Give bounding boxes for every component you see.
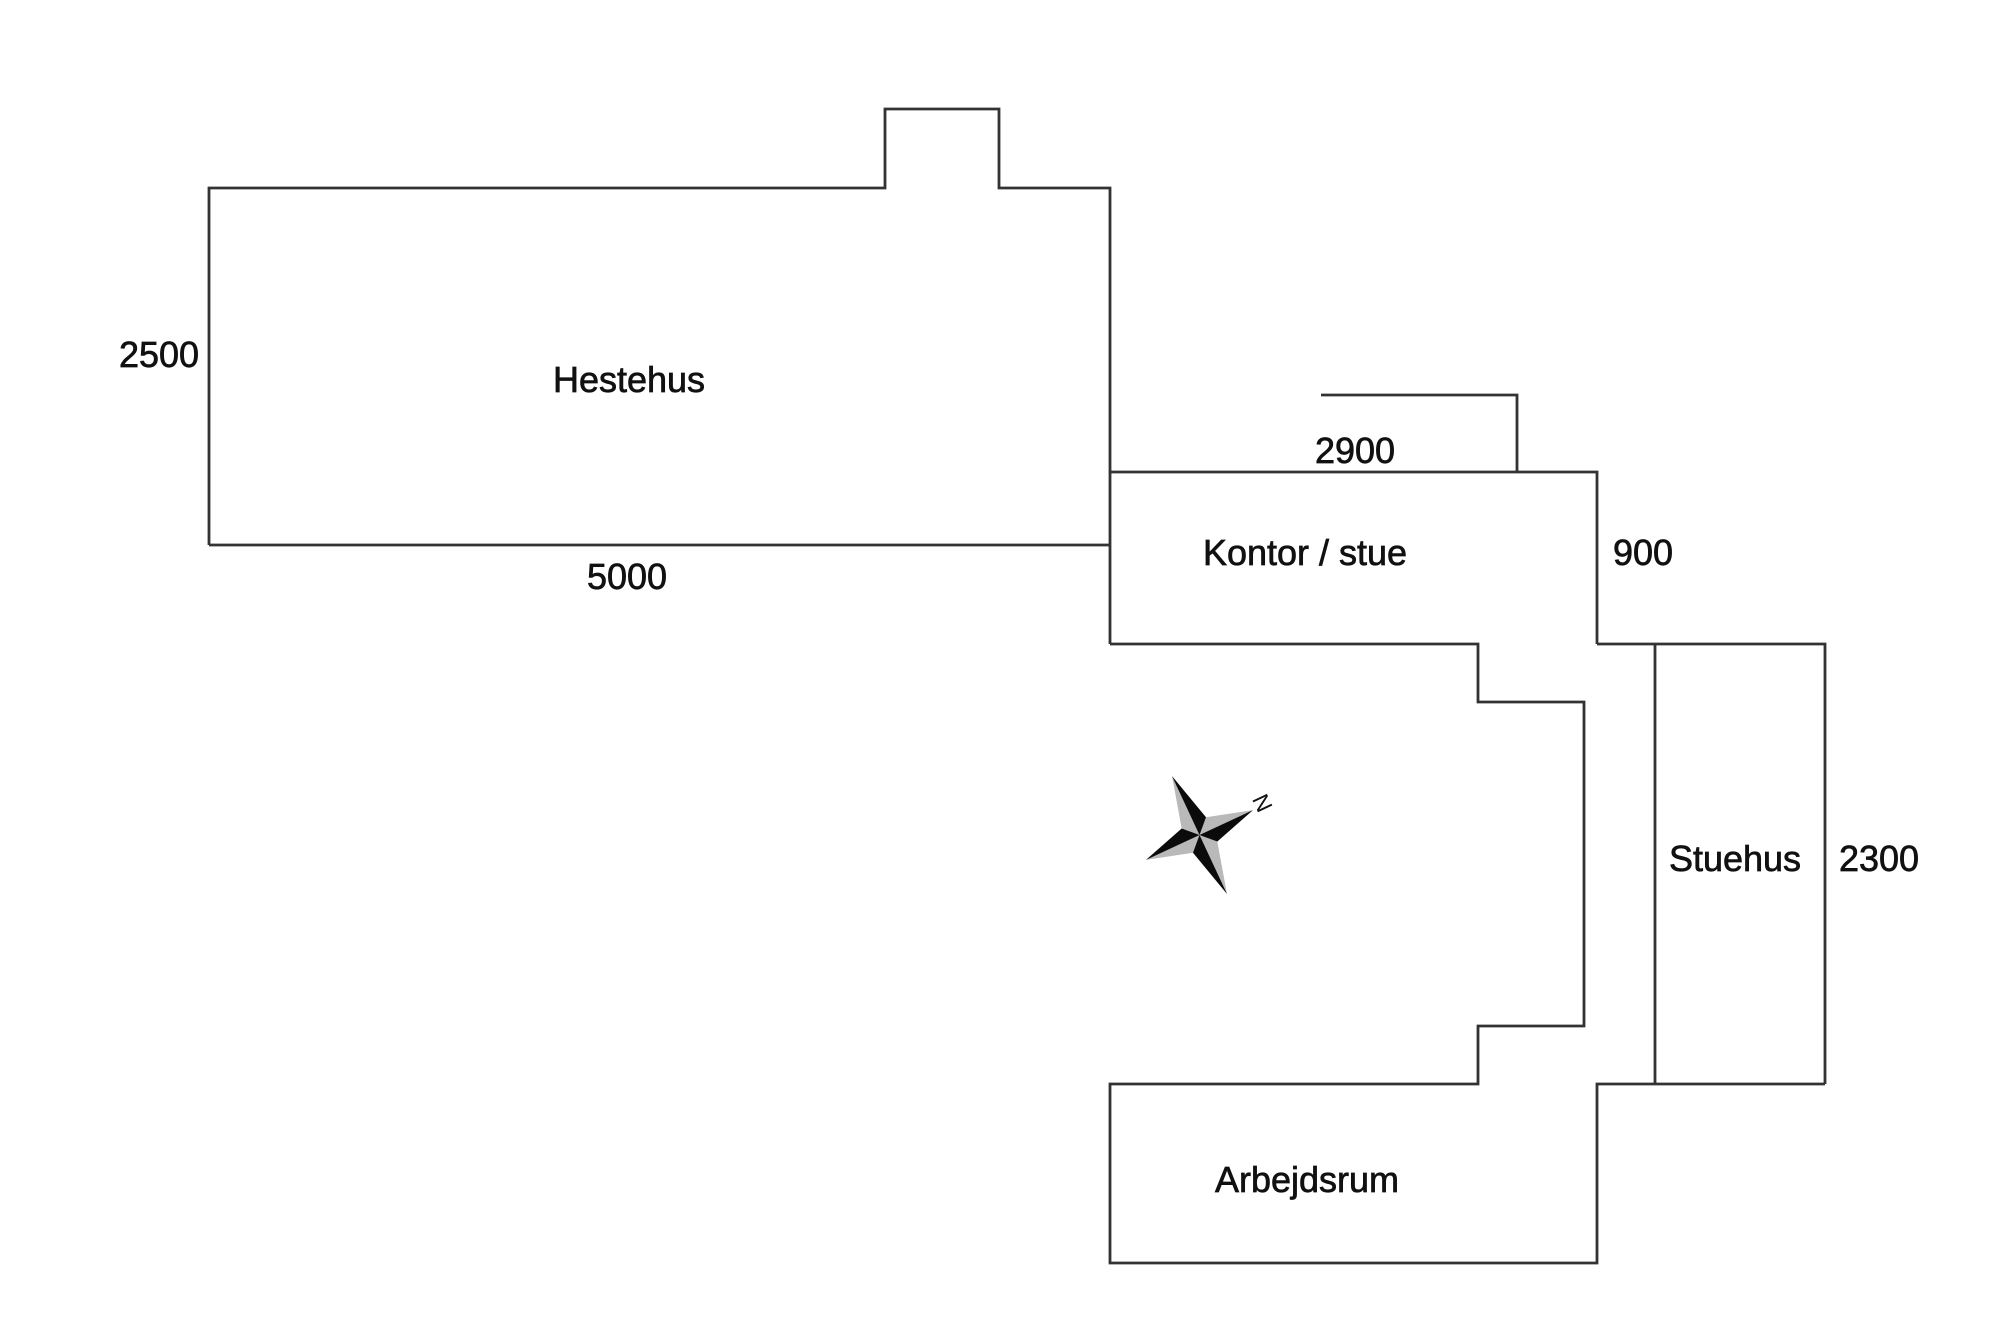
svg-text:Arbejdsrum: Arbejdsrum <box>1215 1159 1399 1200</box>
svg-text:2300: 2300 <box>1839 838 1919 879</box>
svg-text:5000: 5000 <box>587 556 667 597</box>
svg-text:Kontor / stue: Kontor / stue <box>1203 532 1407 573</box>
svg-text:2900: 2900 <box>1315 430 1395 471</box>
svg-text:Stuehus: Stuehus <box>1669 838 1801 879</box>
svg-text:N: N <box>1247 790 1278 816</box>
svg-text:Hestehus: Hestehus <box>553 359 705 400</box>
svg-text:2500: 2500 <box>119 334 199 375</box>
svg-text:900: 900 <box>1613 532 1673 573</box>
